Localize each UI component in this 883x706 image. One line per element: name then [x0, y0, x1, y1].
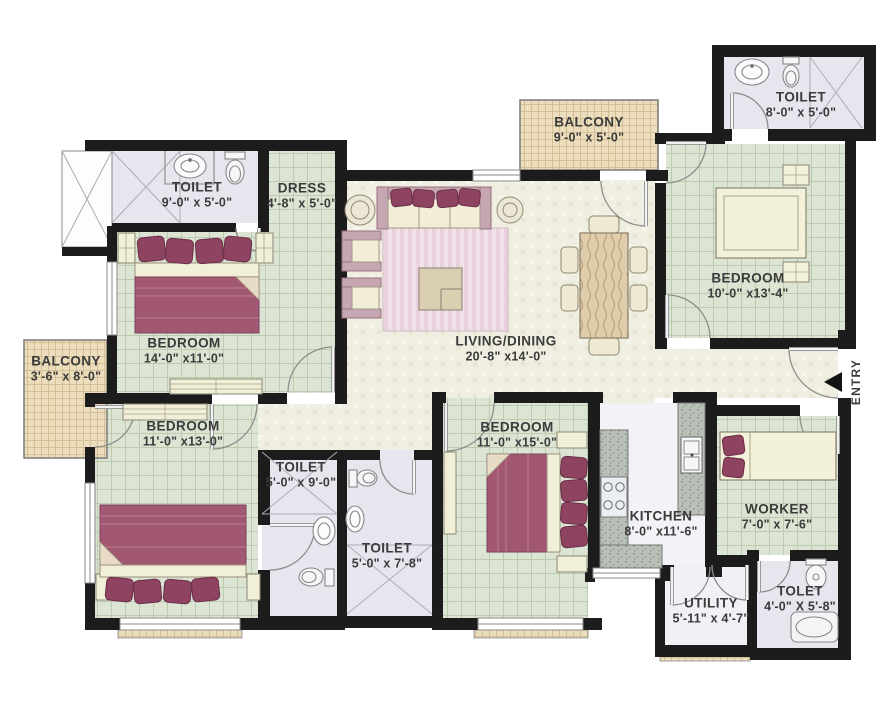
kitchen-counter-bottom: [600, 545, 662, 568]
window-bedroom-2-bottom: [120, 618, 240, 630]
armchair-1: [342, 231, 381, 271]
window-living-top: [473, 170, 520, 181]
balcony-top-floor: [520, 100, 658, 170]
window-ledge-2: [474, 630, 588, 638]
bathtub-icon: [791, 612, 838, 642]
window-bedroom-3-bottom: [478, 618, 583, 630]
window-ledge-1: [118, 630, 242, 638]
armchair-2: [342, 278, 381, 318]
floor-plan: TOILET 9'-0" x 5'-0" DRESS 4'-8" x 5'-0"…: [0, 0, 883, 706]
coffee-table: [419, 268, 462, 310]
stove-icon: [601, 477, 627, 517]
sofa: [377, 187, 491, 229]
bed-worker: [720, 432, 836, 480]
dress-floor: [269, 151, 335, 232]
dining-table: [580, 233, 628, 338]
bed-bedroom-1: [118, 233, 273, 333]
hallway-floor: [258, 404, 434, 451]
window-bedroom-2: [85, 483, 95, 583]
kitchen-sink-icon: [681, 437, 702, 473]
window-bedroom-1: [107, 262, 117, 335]
duct-shaft: [62, 151, 112, 247]
window-kitchen-bottom: [593, 568, 660, 578]
entry-corridor-floor: [655, 349, 838, 398]
wardrobe-bedroom-3: [444, 452, 456, 534]
floor-plan-graphics: [0, 0, 883, 706]
